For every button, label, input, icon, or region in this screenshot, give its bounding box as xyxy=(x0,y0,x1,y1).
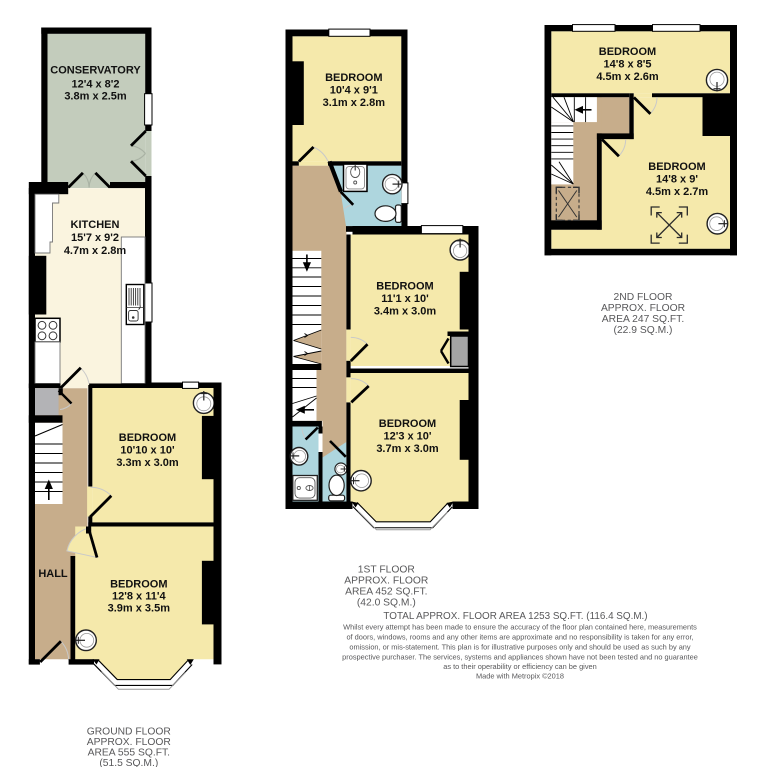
svg-text:APPROX. FLOOR: APPROX. FLOOR xyxy=(87,737,171,748)
svg-text:AREA 555 SQ.FT.: AREA 555 SQ.FT. xyxy=(88,748,170,759)
svg-text:12'8 x 11'4: 12'8 x 11'4 xyxy=(112,591,166,603)
svg-text:14'8 x 9': 14'8 x 9' xyxy=(656,174,698,186)
svg-text:3.7m x 3.0m: 3.7m x 3.0m xyxy=(376,443,439,455)
svg-text:3.1m x 2.8m: 3.1m x 2.8m xyxy=(323,97,386,109)
svg-text:TOTAL APPROX. FLOOR AREA 1253: TOTAL APPROX. FLOOR AREA 1253 SQ.FT. (11… xyxy=(383,611,647,622)
svg-text:10'4 x 9'1: 10'4 x 9'1 xyxy=(330,85,378,97)
svg-text:KITCHEN: KITCHEN xyxy=(71,219,120,231)
svg-text:15'7 x 9'2: 15'7 x 9'2 xyxy=(71,232,119,244)
svg-text:BEDROOM: BEDROOM xyxy=(110,579,167,591)
svg-text:APPROX. FLOOR: APPROX. FLOOR xyxy=(344,576,428,587)
svg-text:BEDROOM: BEDROOM xyxy=(599,46,656,58)
svg-text:Made with Metropix ©2018: Made with Metropix ©2018 xyxy=(476,672,564,681)
svg-text:(42.0 SQ.M.): (42.0 SQ.M.) xyxy=(357,598,416,609)
svg-text:3.4m x 3.0m: 3.4m x 3.0m xyxy=(374,306,437,318)
svg-text:4.7m x 2.8m: 4.7m x 2.8m xyxy=(64,245,127,257)
svg-text:prospective purchaser. The ser: prospective purchaser. The services, sys… xyxy=(342,653,698,662)
svg-text:BEDROOM: BEDROOM xyxy=(325,72,382,84)
svg-text:BEDROOM: BEDROOM xyxy=(119,432,176,444)
svg-text:2ND FLOOR: 2ND FLOOR xyxy=(614,292,673,303)
svg-text:omission, or mis-statement. Th: omission, or mis-statement. This plan is… xyxy=(349,643,691,652)
svg-text:3.9m x 3.5m: 3.9m x 3.5m xyxy=(108,603,171,615)
svg-text:BEDROOM: BEDROOM xyxy=(379,418,436,430)
svg-text:3.3m x 3.0m: 3.3m x 3.0m xyxy=(116,457,179,469)
svg-text:HALL: HALL xyxy=(38,568,68,580)
svg-text:AREA 247 SQ.FT.: AREA 247 SQ.FT. xyxy=(602,314,684,325)
svg-text:4.5m x 2.7m: 4.5m x 2.7m xyxy=(646,186,709,198)
svg-text:CONSERVATORY: CONSERVATORY xyxy=(50,65,141,77)
svg-text:BEDROOM: BEDROOM xyxy=(376,281,433,293)
svg-text:of doors, windows, rooms and a: of doors, windows, rooms and any other i… xyxy=(346,633,693,642)
svg-text:3.8m x 2.5m: 3.8m x 2.5m xyxy=(64,91,127,103)
svg-text:AREA 452 SQ.FT.: AREA 452 SQ.FT. xyxy=(345,587,427,598)
svg-text:(51.5 SQ.M.): (51.5 SQ.M.) xyxy=(99,758,158,767)
svg-text:14'8 x 8'5: 14'8 x 8'5 xyxy=(603,59,651,71)
svg-text:11'1 x 10': 11'1 x 10' xyxy=(381,293,429,305)
svg-text:(22.9 SQ.M.): (22.9 SQ.M.) xyxy=(614,325,673,336)
svg-text:4.5m x 2.6m: 4.5m x 2.6m xyxy=(596,71,659,83)
svg-text:GROUND FLOOR: GROUND FLOOR xyxy=(87,727,171,738)
svg-text:BEDROOM: BEDROOM xyxy=(648,161,705,173)
svg-text:12'3 x 10': 12'3 x 10' xyxy=(383,431,431,443)
svg-text:Whilst every attempt has been: Whilst every attempt has been made to en… xyxy=(343,623,697,632)
svg-text:1ST FLOOR: 1ST FLOOR xyxy=(358,565,415,576)
svg-text:as to their operability or eff: as to their operability or efficiency ca… xyxy=(443,662,597,671)
svg-text:12'4 x 8'2: 12'4 x 8'2 xyxy=(71,79,119,91)
svg-text:APPROX. FLOOR: APPROX. FLOOR xyxy=(601,303,685,314)
svg-text:10'10 x 10': 10'10 x 10' xyxy=(120,445,175,457)
